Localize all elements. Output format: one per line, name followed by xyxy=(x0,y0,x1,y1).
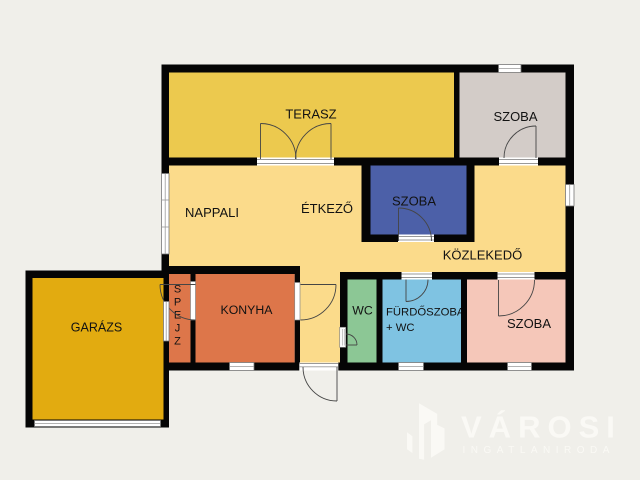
svg-text:INGATLANIRODA: INGATLANIRODA xyxy=(463,445,615,456)
svg-text:+ WC: + WC xyxy=(386,322,415,334)
svg-text:J: J xyxy=(175,323,181,335)
svg-text:ÉTKEZŐ: ÉTKEZŐ xyxy=(301,201,353,216)
svg-text:KONYHA: KONYHA xyxy=(221,303,274,317)
svg-text:SZOBA: SZOBA xyxy=(493,109,537,124)
svg-text:GARÁZS: GARÁZS xyxy=(71,320,122,335)
svg-text:FÜRDŐSZOBA: FÜRDŐSZOBA xyxy=(386,305,465,319)
svg-text:KÖZLEKEDŐ: KÖZLEKEDŐ xyxy=(443,248,522,263)
svg-text:WC: WC xyxy=(352,304,373,318)
svg-text:S: S xyxy=(174,284,181,296)
svg-text:SZOBA: SZOBA xyxy=(392,194,436,209)
svg-text:TERASZ: TERASZ xyxy=(285,107,336,122)
svg-text:VÁROSI: VÁROSI xyxy=(461,410,622,445)
svg-text:Z: Z xyxy=(174,336,181,348)
svg-text:SZOBA: SZOBA xyxy=(507,316,551,331)
svg-text:P: P xyxy=(174,297,181,309)
svg-text:NAPPALI: NAPPALI xyxy=(185,205,239,220)
